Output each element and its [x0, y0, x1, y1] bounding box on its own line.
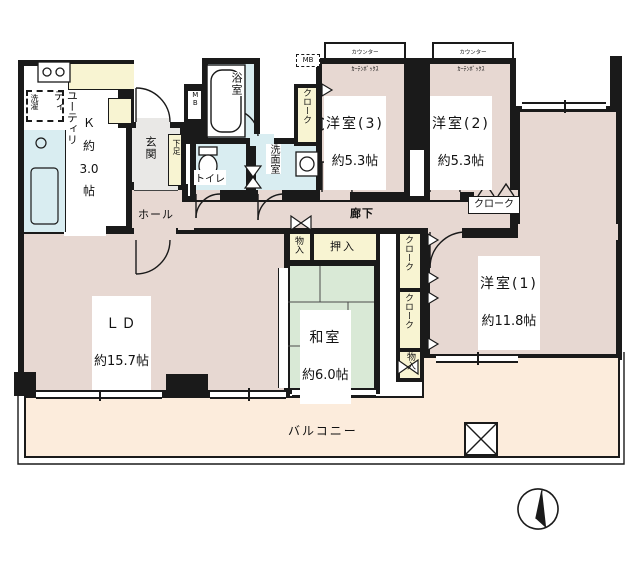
label-cloak-b: クローク [402, 293, 415, 329]
label-washroom: 洗面室 [266, 144, 281, 174]
plan-symbols [0, 0, 640, 569]
yoshitsu1-name: 洋室(1) [480, 276, 538, 294]
yoshitsu3-name: 洋室(3) [326, 116, 384, 134]
door-washroom [258, 194, 284, 220]
label-cloak-north: クローク [300, 88, 313, 124]
label-shoe: 下足 [168, 134, 182, 186]
label-toilet: トイレ [194, 170, 226, 185]
door-entrance [136, 88, 170, 122]
washbasin-icon [296, 152, 318, 176]
ld-name: ＬＤ [94, 316, 149, 334]
label-yoshitsu3: 洋室(3) 約5.3帖 [324, 96, 386, 190]
door-yoshitsu1 [430, 232, 466, 268]
label-genkan: 玄関 [142, 136, 158, 160]
label-oshiire: 押入 [330, 238, 356, 254]
stove-icon [38, 62, 70, 82]
label-yoshitsu2: 洋室(2) 約5.3帖 [430, 96, 492, 190]
label-ld: ＬＤ 約15.7帖 [92, 296, 151, 390]
compass-icon [514, 485, 561, 532]
yoshitsu1-size: 約11.8帖 [480, 314, 538, 330]
washitsu-size: 約6.0帖 [302, 368, 349, 384]
yoshitsu3-size: 約5.3帖 [326, 154, 384, 170]
ld-size: 約15.7帖 [94, 354, 149, 370]
label-cloak-yo1: クローク [468, 196, 520, 214]
label-hall: ホール [138, 206, 174, 222]
washitsu-name: 和室 [302, 330, 349, 348]
label-yoshitsu1: 洋室(1) 約11.8帖 [478, 256, 540, 350]
label-cloak-a: クローク [402, 235, 415, 271]
label-kitchen: Ｋ 約 3.0 帖 [76, 112, 102, 203]
label-monoire-2: 物入 [404, 352, 417, 370]
label-monoire-1: 物入 [292, 236, 305, 254]
yoshitsu2-size: 約5.3帖 [432, 154, 490, 170]
label-bath: 浴室 [228, 72, 244, 96]
door-ld [136, 240, 170, 274]
label-balcony: バルコニー [288, 422, 358, 439]
folding-door-washroom [245, 166, 261, 188]
escape-hatch-x [466, 424, 496, 454]
folding-door-monoire1 [291, 216, 311, 230]
label-corridor: 廊下 [350, 205, 374, 221]
door-toilet [196, 194, 220, 218]
label-washitsu: 和室 約6.0帖 [300, 310, 351, 404]
label-utility: ユーティリティ [52, 90, 78, 154]
floor-plan: カウンター カウンター ｶｰﾃﾝﾎﾞｯｸｽ ｶｰﾃﾝﾎﾞｯｸｽ MB MB 洗濯 [0, 0, 640, 569]
yoshitsu2-name: 洋室(2) [432, 116, 490, 134]
